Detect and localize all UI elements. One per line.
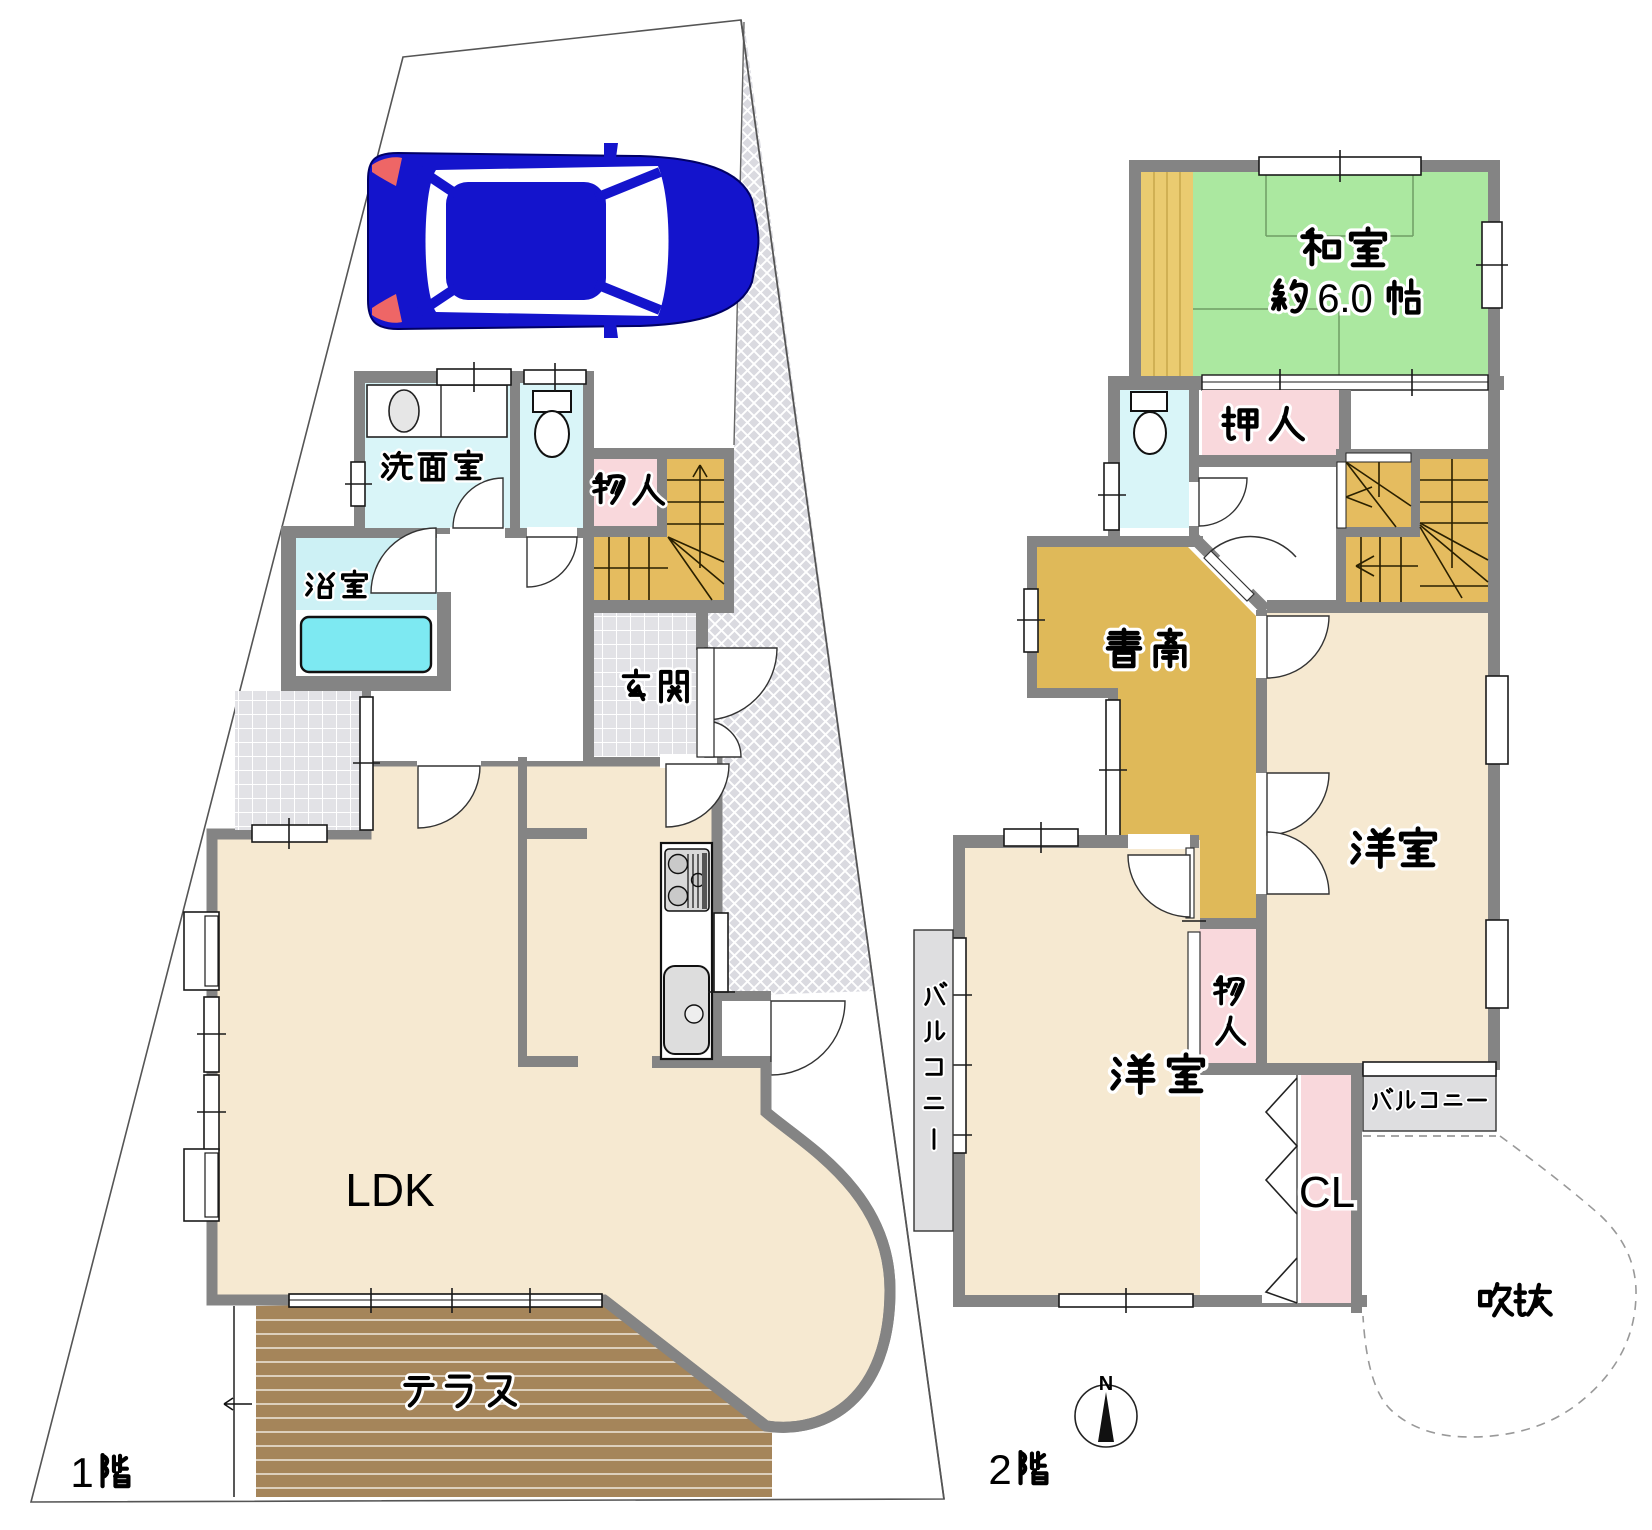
svg-text:CL: CL [1299, 1168, 1355, 1217]
svg-text:N: N [1099, 1373, 1113, 1395]
svg-text:6.0: 6.0 [1317, 277, 1373, 321]
svg-text:LDK: LDK [345, 1164, 435, 1216]
svg-text:2: 2 [988, 1446, 1011, 1493]
svg-text:1: 1 [70, 1449, 93, 1496]
